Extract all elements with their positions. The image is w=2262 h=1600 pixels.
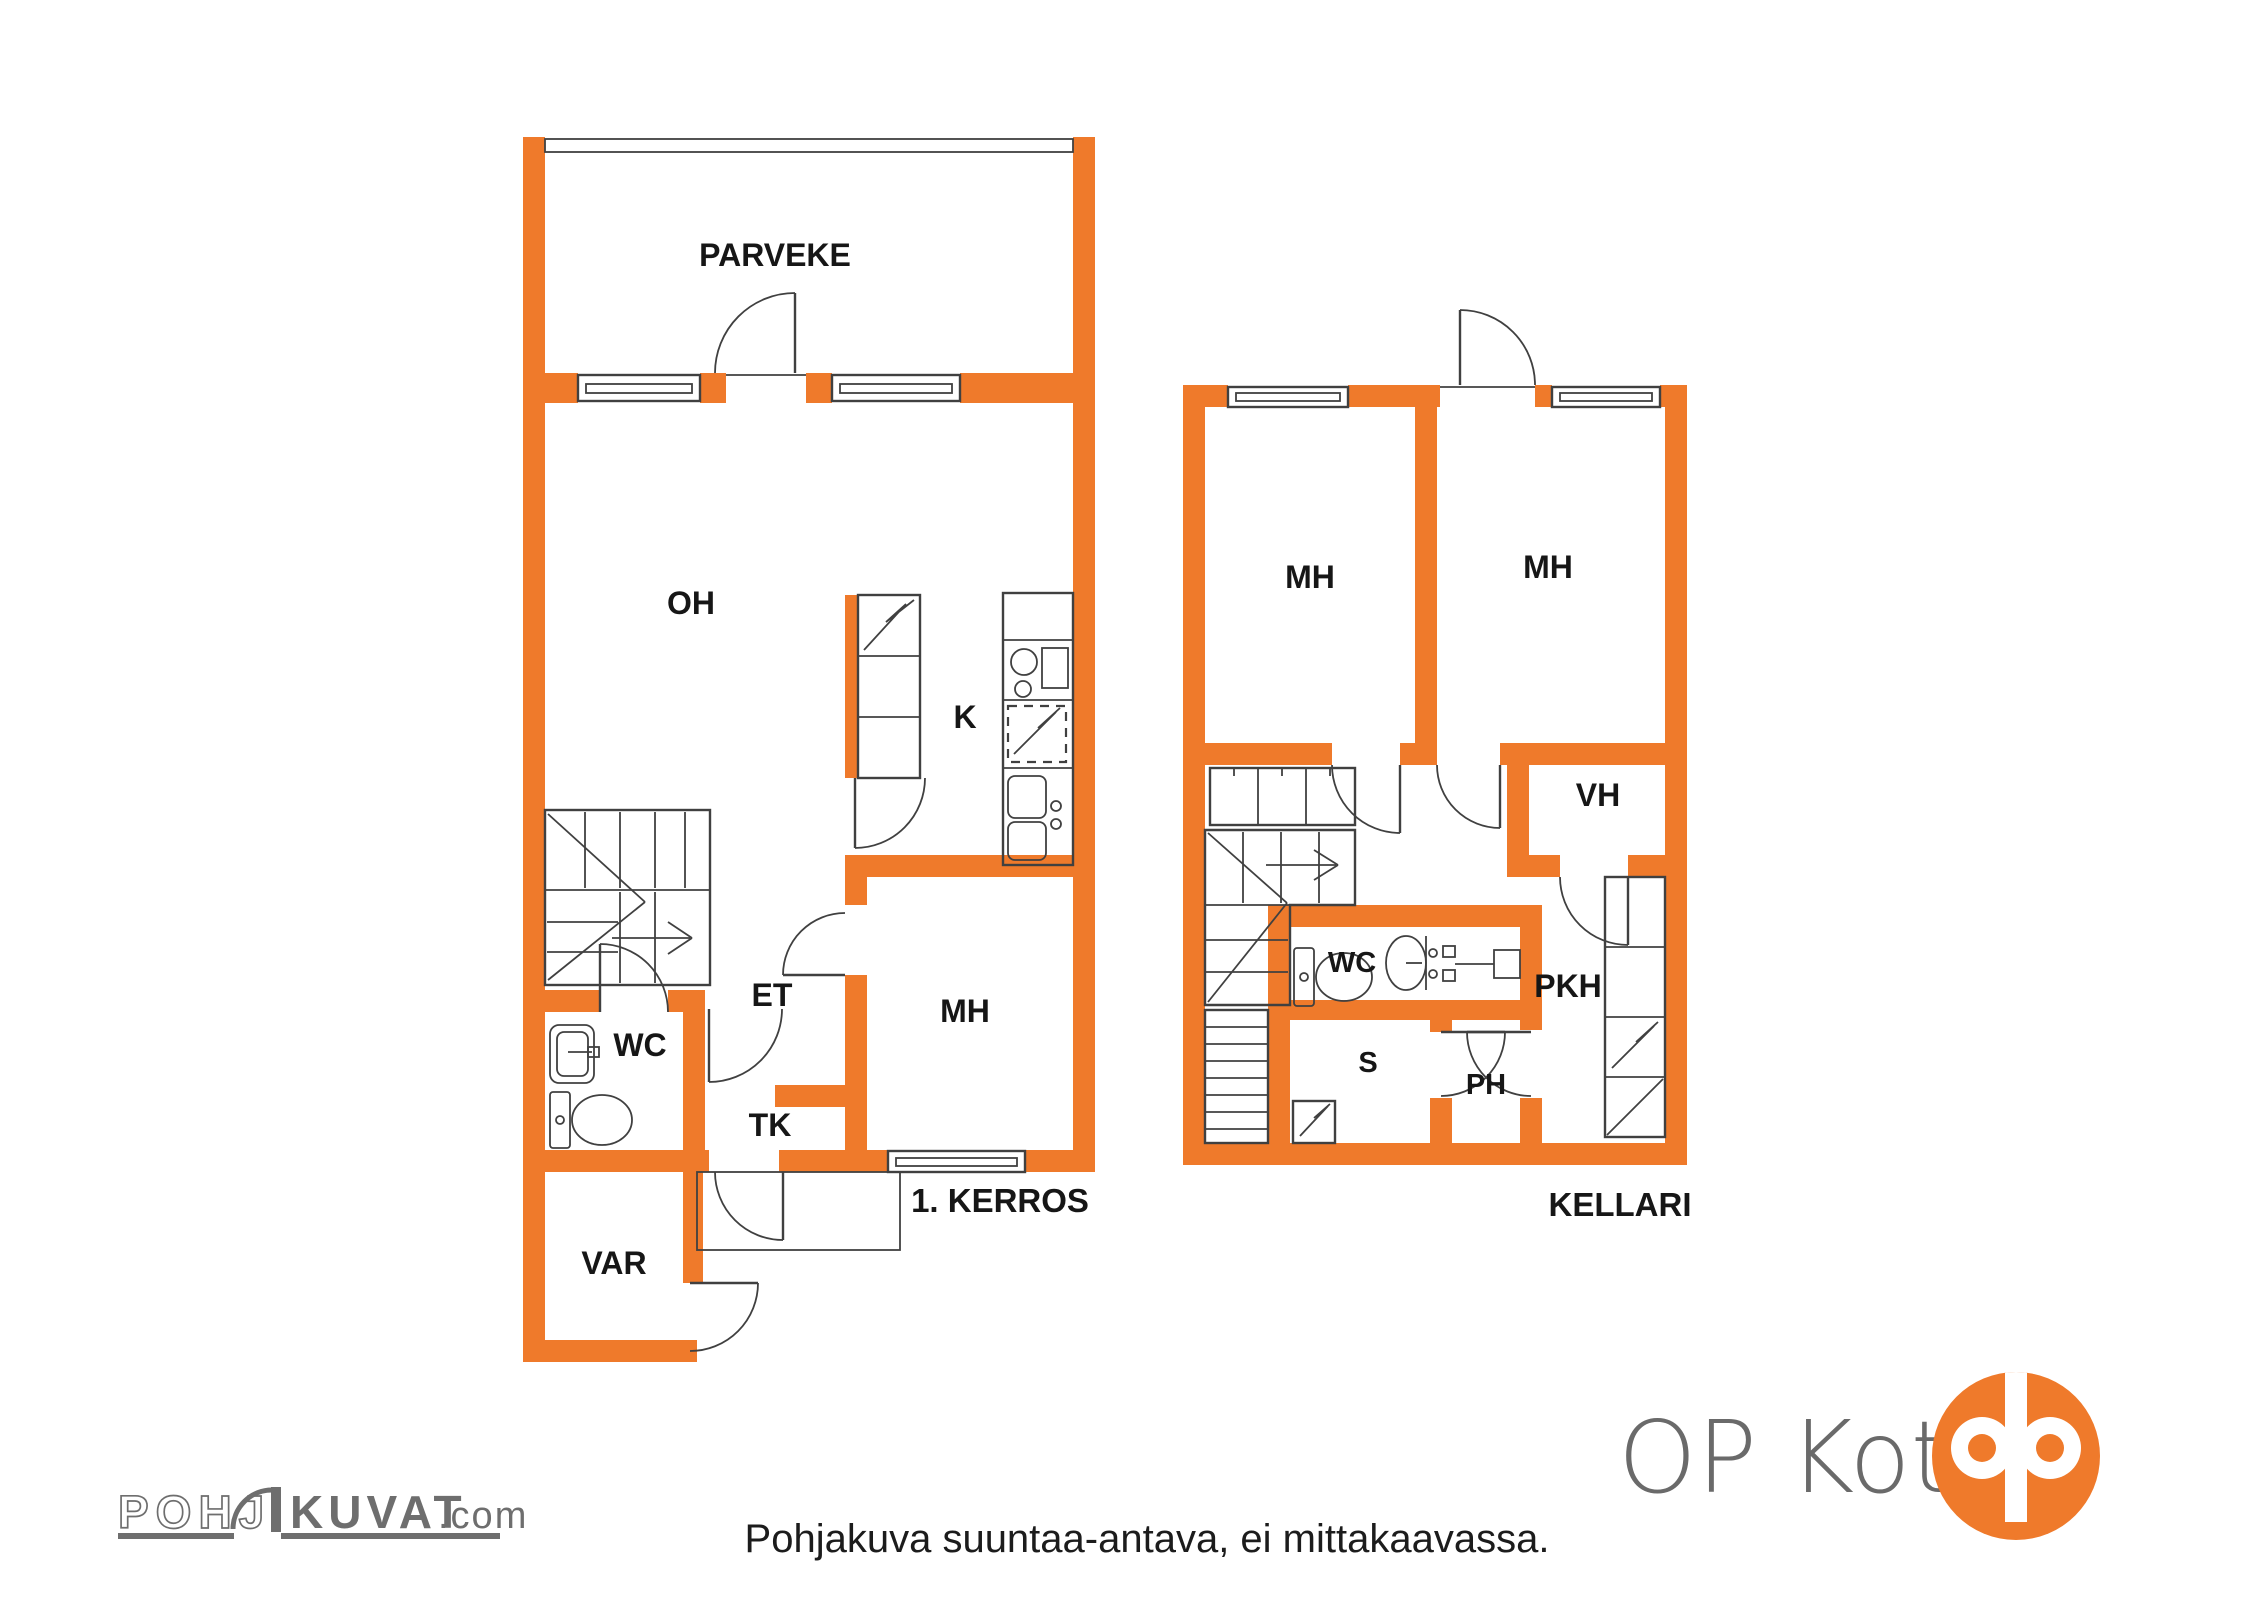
window-icon — [1228, 387, 1660, 407]
washbasin-icon — [1386, 936, 1437, 990]
room-label-oh: OH — [667, 585, 715, 621]
room-label-wc-basement: WC — [1328, 947, 1376, 979]
floorplan-page: PARVEKE OH K ET MH WC TK VAR 1. KERROS — [0, 0, 2262, 1600]
pohjakuvat-logo-suffix: .com — [438, 1495, 528, 1537]
kitchen-counter-icon — [1003, 593, 1073, 865]
room-label-s: S — [1358, 1047, 1377, 1079]
disclaimer-text: Pohjakuva suuntaa-antava, ei mittakaavas… — [745, 1517, 1550, 1561]
kitchen-sink-icon — [1008, 776, 1061, 860]
first-floor-plan: PARVEKE OH K ET MH WC TK VAR 1. KERROS — [523, 137, 1095, 1362]
sauna-stove-icon — [1293, 1101, 1335, 1143]
room-label-var: VAR — [581, 1245, 646, 1281]
room-label-mh-left: MH — [1285, 559, 1335, 595]
shelf-icon — [1605, 877, 1665, 1137]
balcony-railing — [545, 139, 1073, 152]
room-label-et: ET — [752, 977, 793, 1013]
floor-title-first-floor: 1. KERROS — [911, 1182, 1089, 1219]
basement-plan: MH MH VH WC PKH S PH KELLARI — [1183, 310, 1692, 1223]
room-label-vh: VH — [1576, 777, 1620, 813]
room-label-pkh: PKH — [1534, 968, 1602, 1004]
washbasin-icon — [550, 1025, 599, 1083]
op-koti-branding: OP Koti — [1618, 1372, 2100, 1540]
floorplan-image: PARVEKE OH K ET MH WC TK VAR 1. KERROS — [0, 0, 2262, 1600]
stairs-icon — [545, 810, 710, 985]
stairs-icon — [1205, 1010, 1268, 1143]
room-label-k: K — [953, 699, 976, 735]
freezer-icon — [1612, 1022, 1658, 1068]
room-label-tk: TK — [749, 1107, 792, 1143]
dishwasher-icon — [1008, 706, 1066, 762]
room-label-ph: PH — [1466, 1069, 1506, 1101]
door-icon — [600, 293, 925, 1351]
faucet-icon — [1443, 946, 1520, 981]
op-logo-icon — [1932, 1372, 2100, 1540]
op-koti-text: OP Koti — [1618, 1399, 1978, 1516]
room-label-mh: MH — [940, 993, 990, 1029]
toilet-icon — [550, 1092, 632, 1148]
fridge-icon — [858, 595, 920, 778]
wall — [523, 137, 1095, 1362]
room-label-wc: WC — [613, 1027, 666, 1063]
stove-icon — [1011, 648, 1068, 697]
pohjakuvat-logo-outline-text: POHJ — [118, 1486, 271, 1538]
room-label-mh-right: MH — [1523, 549, 1573, 585]
pohjakuvat-logo: POHJ KUVAT .com — [118, 1486, 528, 1539]
floor-title-basement: KELLARI — [1549, 1186, 1692, 1223]
room-label-parveke: PARVEKE — [699, 237, 851, 273]
